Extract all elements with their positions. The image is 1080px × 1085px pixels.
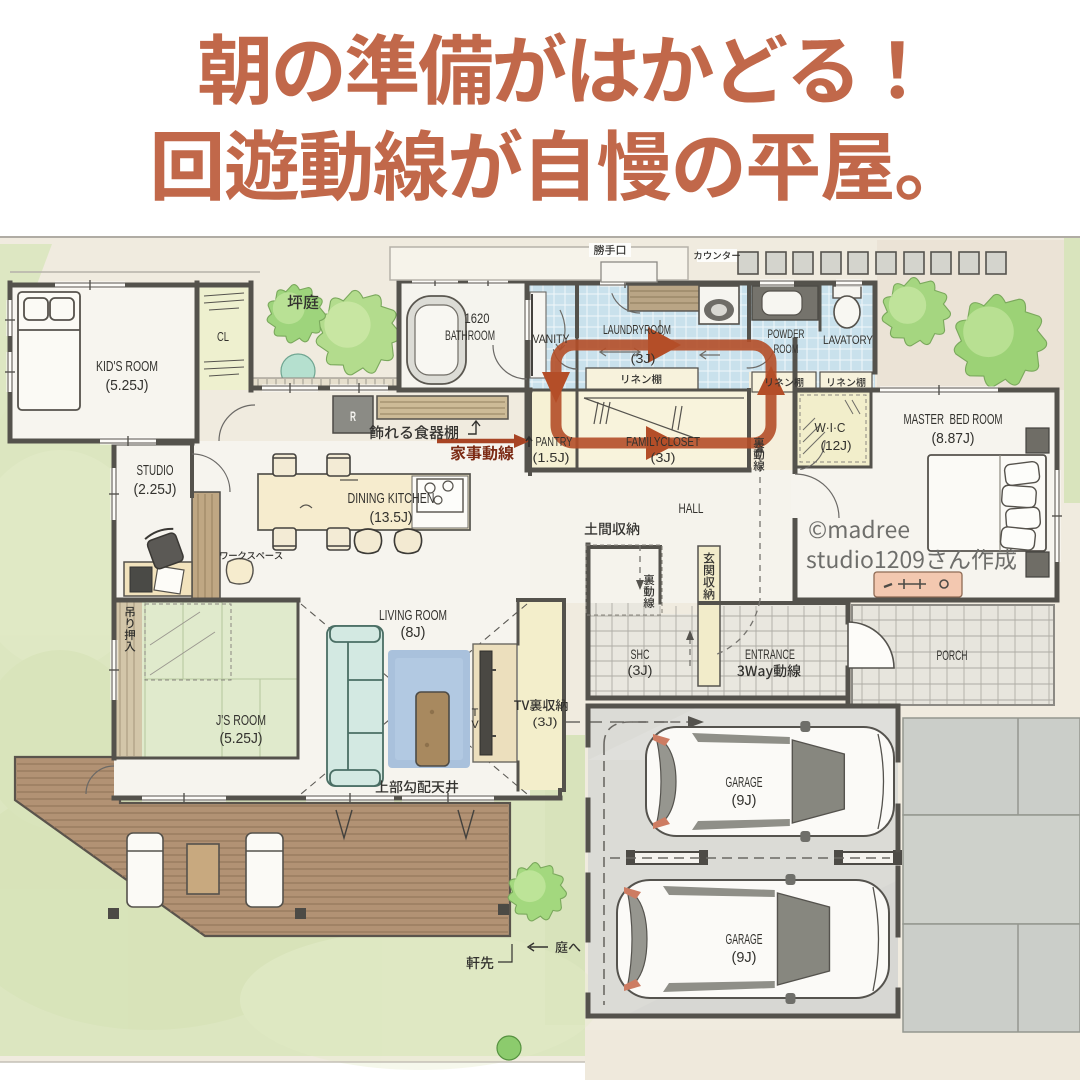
svg-text:(5.25J): (5.25J) [220, 730, 263, 747]
svg-text:J'S ROOM: J'S ROOM [216, 712, 266, 729]
svg-text:(3J): (3J) [651, 450, 676, 465]
svg-text:POWDER: POWDER [768, 327, 805, 341]
svg-text:(5.25J): (5.25J) [106, 377, 149, 394]
svg-text:(1.5J): (1.5J) [533, 450, 570, 465]
svg-text:PORCH: PORCH [937, 647, 968, 663]
svg-text:CL: CL [217, 329, 229, 344]
svg-text:ROOM: ROOM [774, 342, 799, 356]
svg-text:(9J): (9J) [732, 792, 757, 809]
svg-text:(3J): (3J) [533, 715, 558, 729]
svg-text:(3J): (3J) [628, 662, 653, 678]
svg-text:FAMILYCLOSET: FAMILYCLOSET [626, 434, 700, 449]
svg-text:LIVING ROOM: LIVING ROOM [379, 607, 447, 624]
svg-text:GARAGE: GARAGE [726, 774, 763, 791]
svg-text:(8.87J): (8.87J) [932, 430, 975, 447]
svg-text:1620: 1620 [465, 310, 490, 326]
svg-text:ENTRANCE: ENTRANCE [745, 646, 795, 662]
svg-text:MASTER BED ROOM: MASTER BED ROOM [904, 411, 1003, 428]
svg-text:LAUNDRYROOM: LAUNDRYROOM [603, 322, 671, 337]
svg-text:W·I·C: W·I·C [815, 420, 846, 435]
svg-text:HALL: HALL [679, 500, 704, 516]
svg-text:KID'S ROOM: KID'S ROOM [96, 358, 158, 375]
svg-text:(2.25J): (2.25J) [134, 481, 177, 498]
svg-text:GARAGE: GARAGE [726, 931, 763, 948]
svg-text:(3J): (3J) [631, 351, 656, 366]
svg-text:STUDIO: STUDIO [137, 462, 174, 479]
svg-text:(8J): (8J) [401, 624, 426, 641]
svg-text:SHC: SHC [631, 646, 650, 662]
svg-text:(13.5J): (13.5J) [370, 509, 413, 526]
svg-text:BATHROOM: BATHROOM [445, 327, 495, 343]
svg-text:(12J): (12J) [821, 438, 852, 453]
svg-text:R: R [350, 408, 356, 424]
svg-text:VANITY: VANITY [533, 332, 570, 346]
svg-text:(9J): (9J) [732, 949, 757, 966]
svg-text:T: T [472, 707, 479, 719]
svg-text:DINING KITCHEN: DINING KITCHEN [348, 490, 435, 507]
svg-text:PANTRY: PANTRY [536, 434, 573, 449]
svg-text:V: V [471, 719, 479, 731]
svg-text:LAVATORY: LAVATORY [823, 333, 873, 347]
